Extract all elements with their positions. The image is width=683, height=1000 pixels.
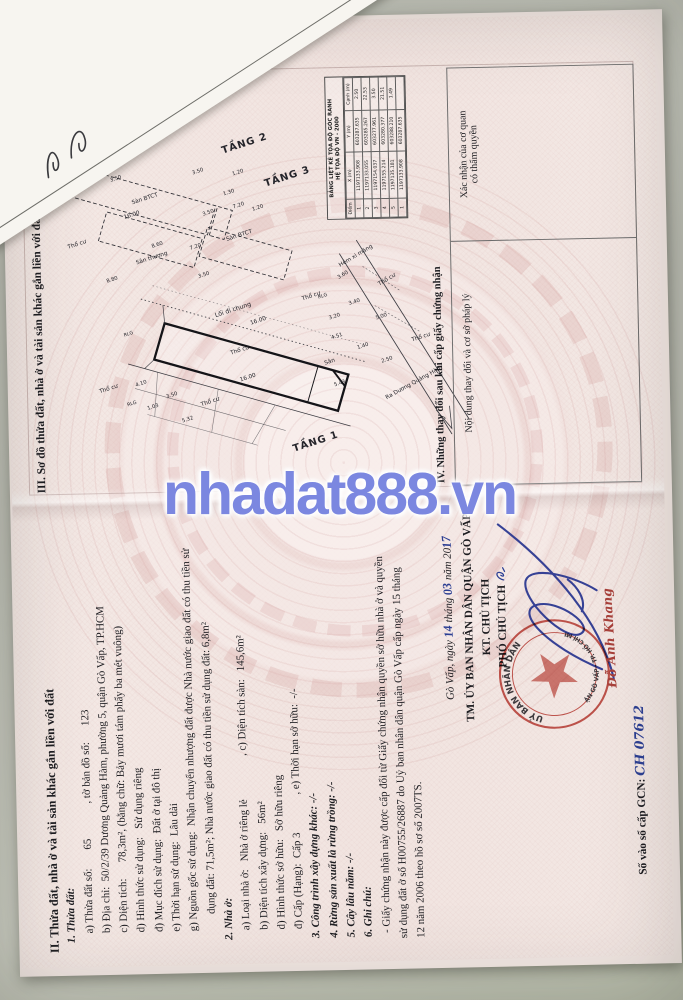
- changes-col-confirmation: Xác nhận của cơ quancó thẩm quyền: [447, 65, 636, 241]
- gcn-label: Số vào sổ cấp GCN:: [634, 776, 649, 875]
- plan-label: 3.60: [337, 270, 350, 281]
- plan-label: 8.60: [151, 241, 164, 250]
- coord-cell: 603287.635: [396, 109, 405, 151]
- handwritten-day: 14: [440, 624, 457, 638]
- plan-label: Thổ cư: [199, 395, 221, 408]
- plan-label: 2.50: [381, 355, 394, 364]
- coordinate-table: BẢNG LIỆT KÊ TỌA ĐỘ GÓC RANH HỆ TỌA ĐỘ V…: [324, 75, 408, 220]
- plan-label: Sân thượng: [135, 249, 169, 266]
- coord-cell: 1: [398, 198, 407, 217]
- plan-label: 1.40: [356, 342, 369, 351]
- plan-label: Sàn BTCT: [225, 228, 254, 243]
- coord-cell: 5: [389, 198, 398, 217]
- plan-label: 16.00: [250, 316, 268, 327]
- plan-label: 3.50: [191, 167, 204, 176]
- plan-label: 4.51: [330, 332, 343, 341]
- plan-label: 1.20: [251, 204, 264, 213]
- coordinate-grid: ĐiểmX (m)Y (m)Cạnh (m) 11197133.90860328…: [343, 76, 407, 219]
- plan-label: 3.50: [197, 271, 210, 280]
- watermark-nhadat888: nhadat888.vn: [163, 460, 516, 528]
- floor-caption: TẦNG 2: [219, 129, 268, 157]
- coord-cell: 2: [363, 198, 372, 217]
- plan-label: Hẻm xi măng: [338, 243, 375, 269]
- plan-label: 7.20: [232, 201, 245, 210]
- plan-label: Thổ cư: [97, 383, 119, 396]
- changes-table: Nội dung thay đổi và cơ sở pháp lý Xác n…: [446, 64, 642, 486]
- floor-caption: TẦNG 1: [291, 427, 340, 455]
- plan-label: 7.20: [189, 243, 202, 252]
- section2-text-block: II. Thửa đất, nhà ở và tài sản khác gắn …: [37, 503, 431, 954]
- photo-of-certificate: II. Thửa đất, nhà ở và tài sản khác gắn …: [0, 0, 683, 1000]
- changes-col1-header: Nội dung thay đổi và cơ sở pháp lý: [451, 241, 476, 484]
- changes-col2-header-l2: có thẩm quyền: [468, 125, 480, 183]
- plan-label: 3.40: [348, 298, 361, 307]
- plan-label: Sàn BTCT: [131, 191, 160, 206]
- changes-col-content: Nội dung thay đổi và cơ sở pháp lý: [451, 237, 641, 485]
- issuing-authority: TM. ỦY BAN NHÂN DÂN QUẬN GÒ VẤP: [459, 500, 478, 736]
- gcn-handwritten-value: CH 07612: [632, 705, 649, 776]
- gcn-number-line: Số vào sổ cấp GCN: CH 07612: [629, 564, 651, 875]
- plan-label: Thổ cư: [66, 238, 88, 251]
- date-thang: tháng: [443, 595, 455, 625]
- plan-label: RLG: [123, 330, 134, 339]
- date-place: Gò Vấp, ngày: [444, 637, 457, 700]
- page2-land-description: II. Thửa đất, nhà ở và tài sản khác gắn …: [12, 484, 674, 969]
- coord-cell: 3: [372, 198, 381, 217]
- date-line: Gò Vấp, ngày 14 tháng 03 năm 2017: [438, 500, 458, 736]
- date-nam: năm 20: [442, 548, 454, 583]
- coord-cell: 1197133.908: [397, 151, 407, 198]
- coord-cell: [395, 77, 404, 110]
- plan-label: RLG: [126, 400, 137, 409]
- floor-caption: TẦNG 3: [262, 162, 311, 190]
- handwritten-month: 03: [439, 582, 456, 596]
- plan-label: 5.32: [181, 415, 194, 424]
- plan-label: Thổ cư: [376, 271, 397, 287]
- plan-label: Sân: [323, 357, 336, 367]
- plan-label: Lối đi chung: [214, 300, 252, 319]
- plan-label: 8.80: [106, 275, 119, 284]
- coord-cell: 1: [355, 199, 364, 218]
- handwritten-year: 17: [438, 535, 455, 549]
- coord-col-header: Điểm: [346, 199, 355, 218]
- plan-label: 4.10: [135, 379, 148, 388]
- plan-label: 3.20: [328, 312, 341, 321]
- plan-label: 1.03: [147, 403, 160, 412]
- plan-label: 3.50: [109, 174, 122, 183]
- plan-label: 1.30: [222, 188, 235, 197]
- handwritten-note-icon: [19, 108, 111, 190]
- coord-row: 11197133.908603287.635: [395, 77, 407, 218]
- seal-star-icon: [524, 646, 581, 704]
- coord-cell: 4: [381, 198, 390, 217]
- plan-label: 1.20: [232, 168, 245, 177]
